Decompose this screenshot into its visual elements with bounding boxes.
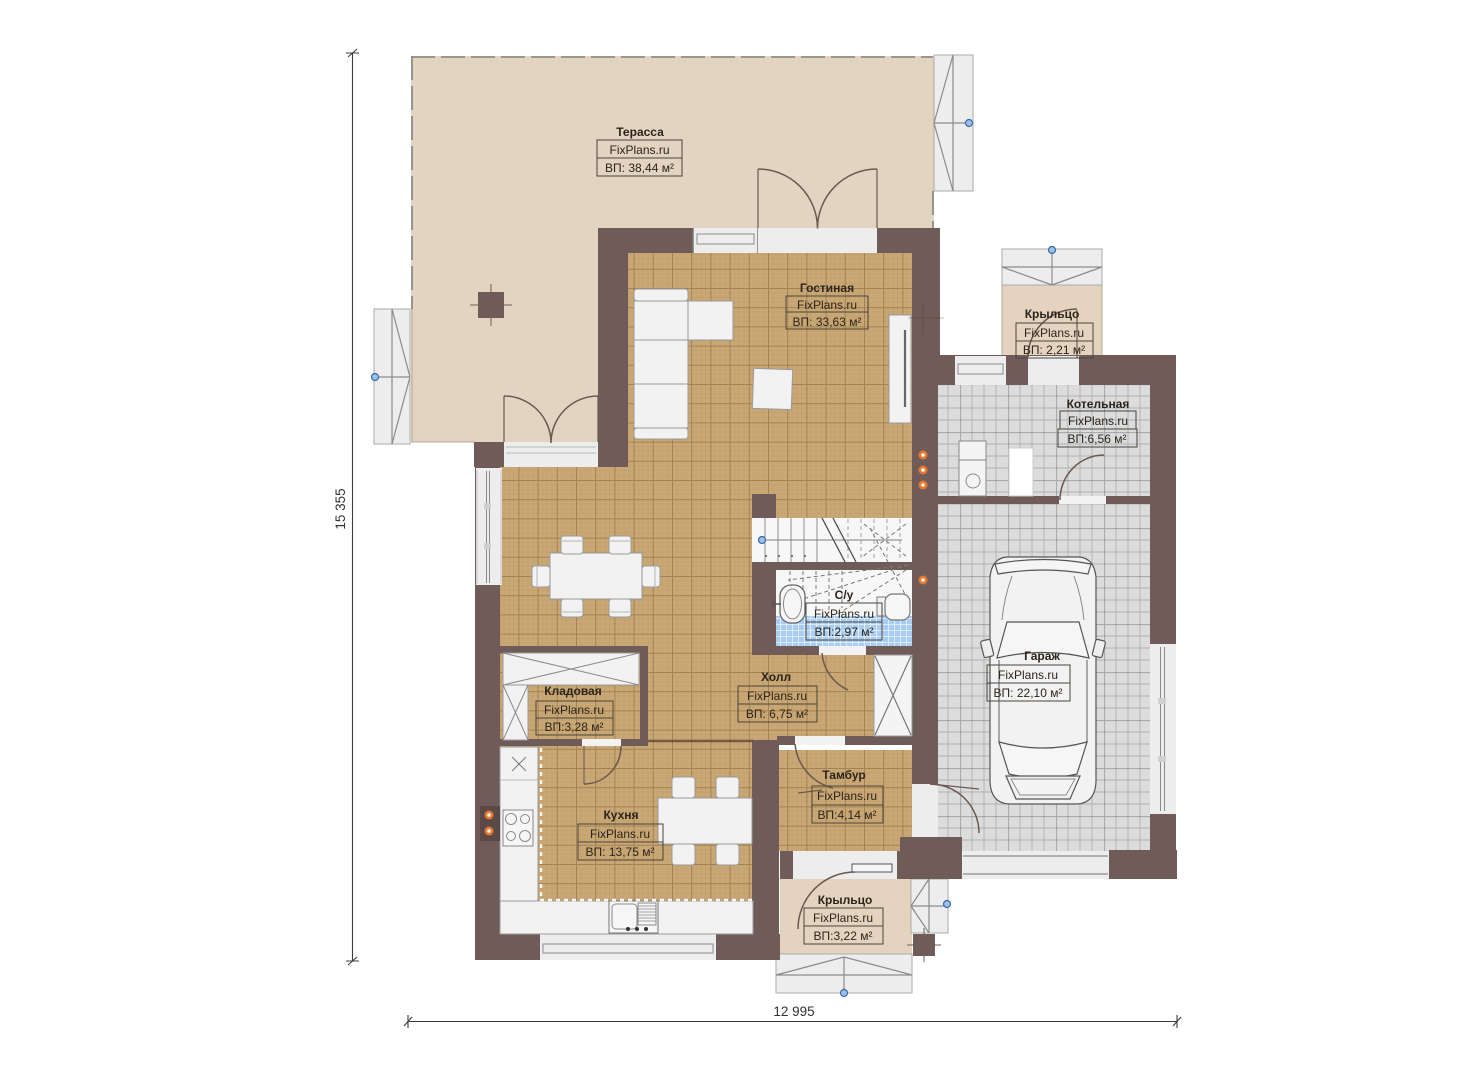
svg-text:ВП: 22,10 м²: ВП: 22,10 м² [994, 686, 1063, 700]
svg-text:ВП: 2,21 м²: ВП: 2,21 м² [1023, 343, 1085, 357]
svg-text:С/у: С/у [835, 588, 854, 602]
svg-text:FixPlans.ru: FixPlans.ru [747, 689, 807, 703]
svg-text:ВП:4,14 м²: ВП:4,14 м² [818, 808, 877, 822]
svg-text:Гостиная: Гостиная [800, 281, 854, 295]
svg-text:ВП: 33,63 м²: ВП: 33,63 м² [793, 315, 862, 329]
svg-text:ВП:2,97 м²: ВП:2,97 м² [815, 625, 874, 639]
svg-text:FixPlans.ru: FixPlans.ru [817, 789, 877, 803]
svg-text:Котельная: Котельная [1067, 397, 1130, 411]
svg-text:FixPlans.ru: FixPlans.ru [1024, 326, 1084, 340]
svg-text:Кладовая: Кладовая [544, 684, 601, 698]
svg-text:Холл: Холл [761, 670, 791, 684]
svg-text:ВП:6,56 м²: ВП:6,56 м² [1068, 432, 1127, 446]
svg-text:ВП: 38,44 м²: ВП: 38,44 м² [605, 161, 674, 175]
svg-text:Крыльцо: Крыльцо [1025, 307, 1080, 321]
svg-text:Терасса: Терасса [616, 125, 664, 139]
svg-text:FixPlans.ru: FixPlans.ru [998, 668, 1058, 682]
svg-text:ВП: 13,75 м²: ВП: 13,75 м² [586, 845, 655, 859]
svg-text:FixPlans.ru: FixPlans.ru [544, 703, 604, 717]
svg-text:FixPlans.ru: FixPlans.ru [609, 143, 669, 157]
svg-text:Кухня: Кухня [603, 808, 638, 822]
svg-text:FixPlans.ru: FixPlans.ru [813, 911, 873, 925]
svg-text:Крыльцо: Крыльцо [818, 893, 873, 907]
svg-text:12 995: 12 995 [773, 1004, 814, 1019]
svg-text:FixPlans.ru: FixPlans.ru [1068, 414, 1128, 428]
svg-text:Гараж: Гараж [1024, 649, 1060, 663]
svg-text:ВП:3,22 м²: ВП:3,22 м² [814, 929, 873, 943]
svg-text:ВП:3,28 м²: ВП:3,28 м² [545, 720, 604, 734]
svg-text:Тамбур: Тамбур [822, 768, 866, 782]
svg-text:FixPlans.ru: FixPlans.ru [797, 298, 857, 312]
svg-text:FixPlans.ru: FixPlans.ru [814, 607, 874, 621]
svg-text:15 355: 15 355 [333, 488, 348, 529]
svg-text:ВП: 6,75 м²: ВП: 6,75 м² [746, 707, 808, 721]
svg-text:FixPlans.ru: FixPlans.ru [590, 827, 650, 841]
